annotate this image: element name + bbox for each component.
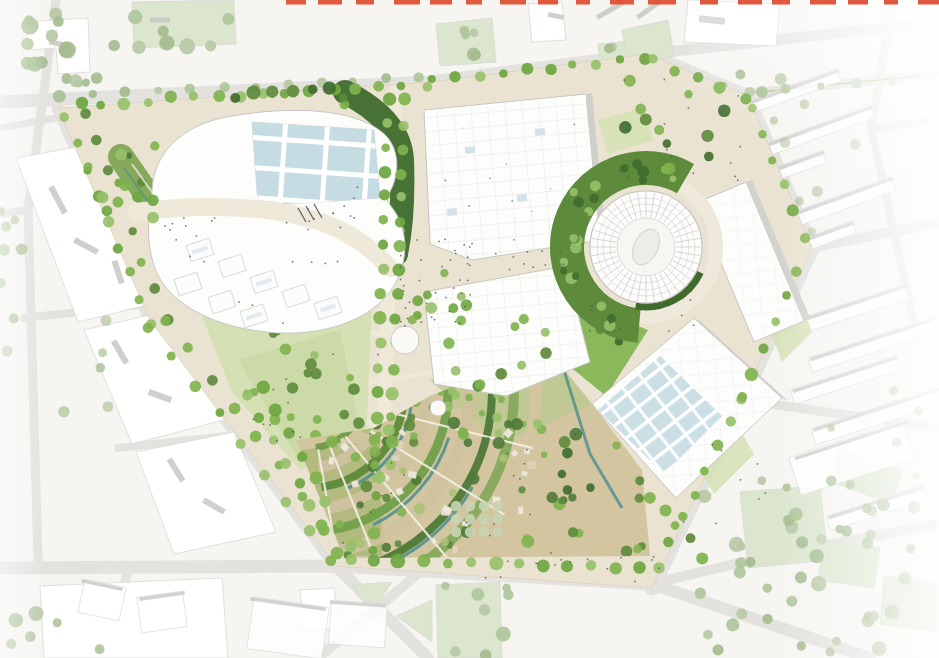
context-block [40,578,228,658]
masterplan-svg [0,0,939,658]
context-block [436,18,496,66]
fade-left [0,0,46,658]
round-pavilion-small [430,400,446,416]
cluster-skylights [252,122,380,206]
masterplan-image [0,0,939,658]
context-block [528,2,566,42]
fade-top-right [690,0,939,170]
context-block [436,582,502,658]
round-pavilion-large [391,326,419,354]
